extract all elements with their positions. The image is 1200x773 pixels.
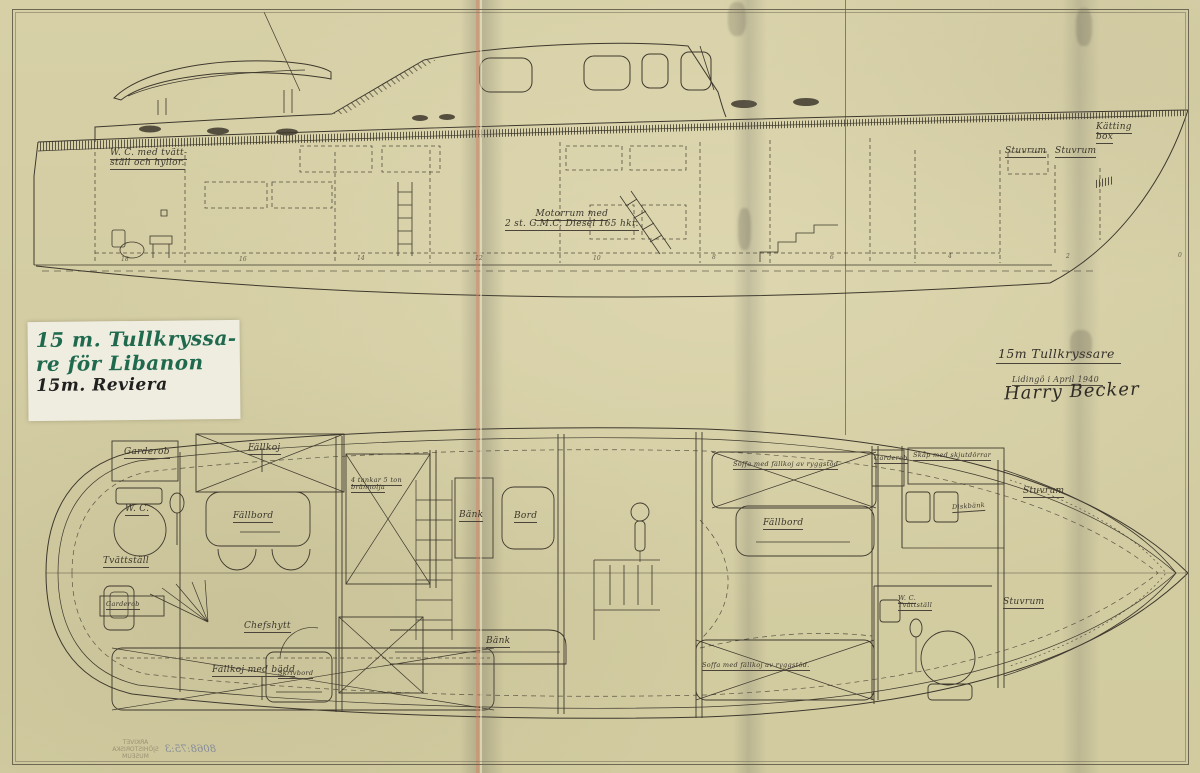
plan-fallbord-fwd-label: Fällbord xyxy=(763,518,803,530)
side-stuvrum-label-1: Stuvrum xyxy=(1005,146,1046,158)
plan-tankar-label: 4 tankar 5 ton brännolja xyxy=(351,477,402,491)
plan-stuvrum-fwd-label: Stuvrum xyxy=(1023,486,1064,498)
plan-bank2-label: Bänk xyxy=(486,636,510,648)
plan-tvattstall-label: Tvättställ xyxy=(103,556,149,568)
plan-wc-fwd-label: W. C. Tvättställ xyxy=(898,595,932,609)
station-number: 0 xyxy=(1178,252,1182,259)
station-number: 4 xyxy=(948,253,952,260)
station-number: 2 xyxy=(1066,253,1070,260)
side-motorrum-label: Motorrum med 2 st. G.M.C. Diesel 165 hkr… xyxy=(505,209,639,229)
stamp-text: ARKIVET SJÖHISTORISKA MUSEUM xyxy=(112,739,158,760)
handwritten-note: 15 m. Tullkryssa- re för Libanon 15m. Re… xyxy=(27,320,240,421)
side-katting-label: Kätting box xyxy=(1096,122,1132,142)
station-number: 16 xyxy=(239,256,247,263)
station-number: 6 xyxy=(830,254,834,261)
plan-wc-label: W. C. xyxy=(125,504,149,516)
station-number: 18 xyxy=(121,256,129,263)
station-number: 8 xyxy=(712,254,716,261)
plan-bord-label: Bord xyxy=(514,511,537,523)
station-number: 12 xyxy=(475,255,483,262)
plan-skap-label: Skåp med skjutdörrar xyxy=(913,452,991,461)
plan-chefshytt-label: Chefshytt xyxy=(244,621,291,633)
plan-garderob-aft2-label: Garderob xyxy=(106,601,140,610)
title-block-title: 15m Tullkryssare xyxy=(996,346,1121,364)
side-stuvrum-label-2: Stuvrum xyxy=(1055,146,1096,158)
side-wc-label: W. C. med tvätt- ställ och hyllor. xyxy=(110,148,187,168)
plan-fallbord-aft-label: Fällbord xyxy=(233,511,273,523)
plan-garderob-aft-label: Garderob xyxy=(124,447,170,459)
plan-skrivbord-label: Skrivbord xyxy=(278,670,313,679)
blueprint-sheet: W. C. med tvätt- ställ och hyllor. Motor… xyxy=(0,0,1200,773)
note-line-3: 15m. Reviera xyxy=(36,374,236,396)
note-line-2: re för Libanon xyxy=(36,350,236,376)
stamp-number: 8068:75:3 xyxy=(165,744,216,755)
plan-soffa-fwd-label: Soffa med fällkoj av ryggstöd xyxy=(733,461,838,470)
station-number: 10 xyxy=(593,255,601,262)
note-line-1: 15 m. Tullkryssa- xyxy=(36,326,236,352)
plan-stuvrum-aft2-label: Stuvrum xyxy=(1003,597,1044,609)
station-number: 14 xyxy=(357,255,365,262)
plan-soffa-aft-label: Soffa med fällkoj av ryggstöd. xyxy=(702,662,810,671)
plan-fallkoj-label: Fällkoj xyxy=(248,443,281,455)
archive-stamp-mirrored: 8068:75:3 ARKIVET SJÖHISTORISKA MUSEUM xyxy=(86,731,216,767)
plan-garderob-fwd-label: Garderob xyxy=(874,455,908,464)
plan-bank1-label: Bänk xyxy=(459,510,483,522)
